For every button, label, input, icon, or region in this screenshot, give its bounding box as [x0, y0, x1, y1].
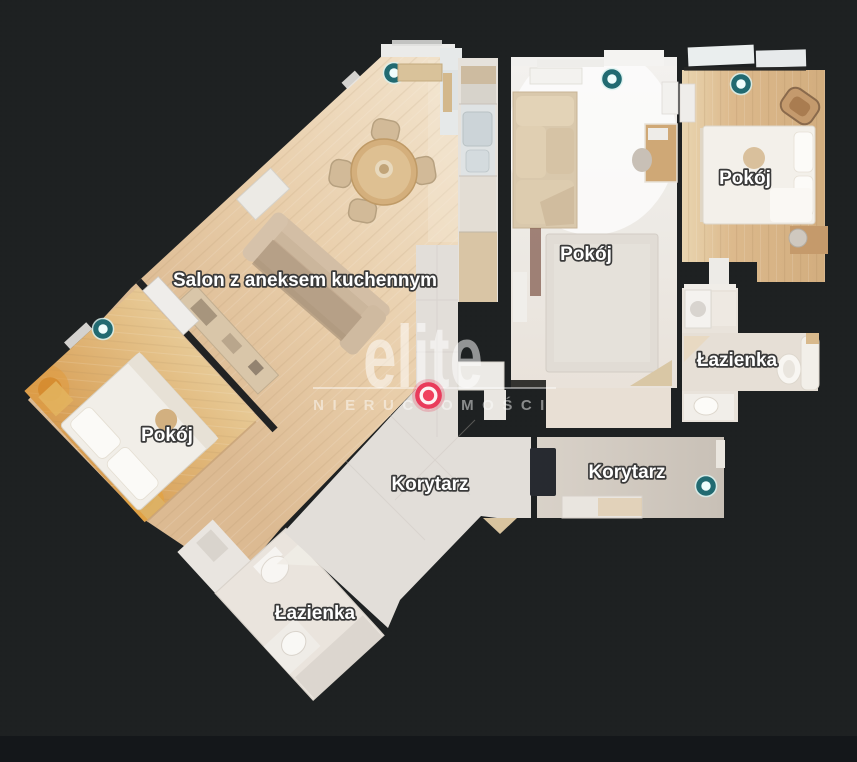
svg-text:Korytarz: Korytarz	[588, 462, 665, 483]
svg-text:Łazienka: Łazienka	[697, 350, 778, 371]
svg-text:Salon z aneksem kuchennym: Salon z aneksem kuchennym	[173, 270, 437, 291]
svg-text:Pokój: Pokój	[560, 244, 612, 265]
svg-text:Korytarz: Korytarz	[391, 474, 468, 495]
svg-text:Łazienka: Łazienka	[275, 603, 356, 624]
svg-text:Pokój: Pokój	[141, 425, 193, 446]
svg-text:Pokój: Pokój	[719, 168, 771, 189]
